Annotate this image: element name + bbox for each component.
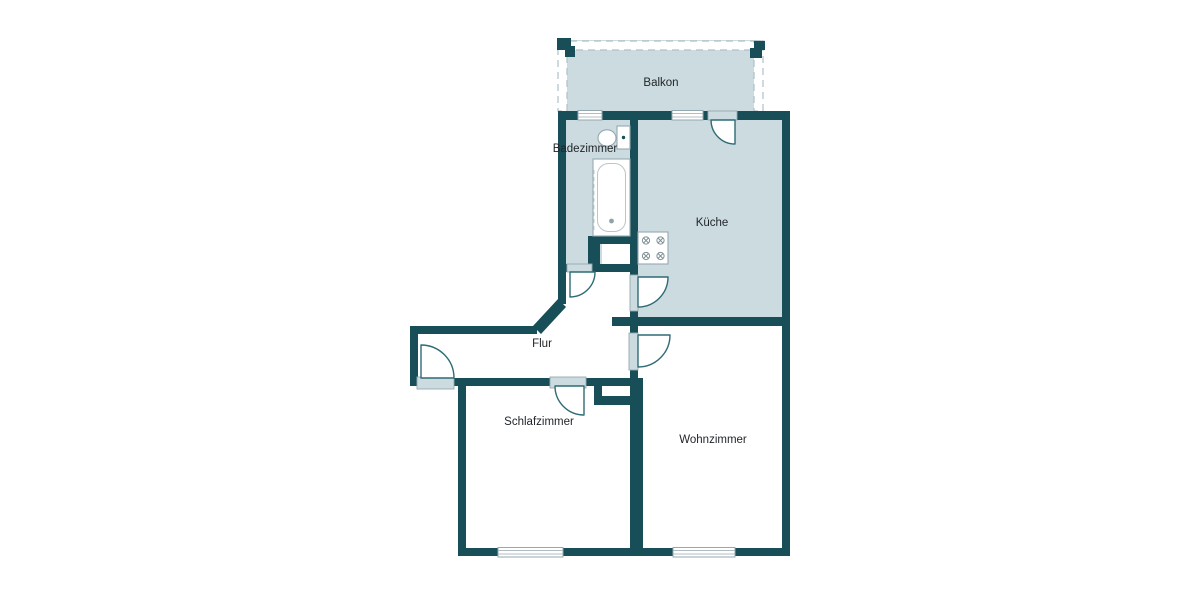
wall-hall-bottom xyxy=(453,378,550,386)
wall-bottom-exterior xyxy=(458,548,498,556)
balkon-threshold xyxy=(708,111,737,120)
badezimmer-label: Badezimmer xyxy=(553,143,618,155)
entrance-threshold xyxy=(417,377,454,389)
wohnzimmer-threshold xyxy=(629,333,638,370)
wall-right-exterior xyxy=(782,111,790,556)
floor-plan: Balkon Badezimmer Küche Flur Schlafzimme… xyxy=(0,0,1200,600)
floor-plan-canvas: Balkon Badezimmer Küche Flur Schlafzimme… xyxy=(0,0,1200,600)
kueche-label: Küche xyxy=(696,217,729,229)
wall-kitchen-living xyxy=(612,317,790,326)
wall-hall-right xyxy=(630,326,638,333)
schlafzimmer-window xyxy=(498,548,563,558)
kueche-threshold xyxy=(630,275,638,311)
railing-post-left xyxy=(565,46,575,57)
wall-bottom-exterior xyxy=(735,548,790,556)
kueche-window xyxy=(672,111,703,121)
shaft-niche xyxy=(602,244,630,264)
badezimmer-threshold xyxy=(567,264,592,272)
wall-facade xyxy=(703,111,708,120)
wall-hall-upper-left xyxy=(558,272,566,304)
wall-bath-kitchen xyxy=(630,311,638,317)
wall-hall-top xyxy=(410,326,537,334)
schlafzimmer-door xyxy=(555,386,584,415)
wall-bath-kitchen xyxy=(630,111,638,275)
wall-chimney-stub xyxy=(594,396,632,405)
wall-bath-bottom xyxy=(558,264,567,272)
wall-shaft xyxy=(588,236,600,264)
wall-bath-left xyxy=(558,111,566,272)
badezimmer-window xyxy=(578,111,602,121)
wall-bedroom-left xyxy=(458,378,466,556)
wall-shaft xyxy=(600,236,630,244)
stove xyxy=(638,232,668,264)
wall-bottom-exterior xyxy=(563,548,673,556)
wall-hall-bottom xyxy=(586,378,643,386)
wohnzimmer-door xyxy=(638,335,670,367)
wall-hall-diagonal xyxy=(533,299,566,334)
wohnzimmer-label: Wohnzimmer xyxy=(679,434,747,446)
entrance-door xyxy=(421,345,454,378)
schlafzimmer-label: Schlafzimmer xyxy=(504,416,574,428)
badezimmer-door xyxy=(570,272,595,297)
flur-label: Flur xyxy=(532,338,552,350)
wall-hall-right xyxy=(630,370,638,378)
bathtub xyxy=(593,159,630,236)
wall-bath-bottom xyxy=(592,264,638,272)
wohnzimmer-window xyxy=(673,548,735,558)
railing-post-right xyxy=(750,48,762,58)
railing-top xyxy=(558,41,764,50)
balkon-floor xyxy=(558,40,763,111)
balkon-label: Balkon xyxy=(643,77,678,89)
